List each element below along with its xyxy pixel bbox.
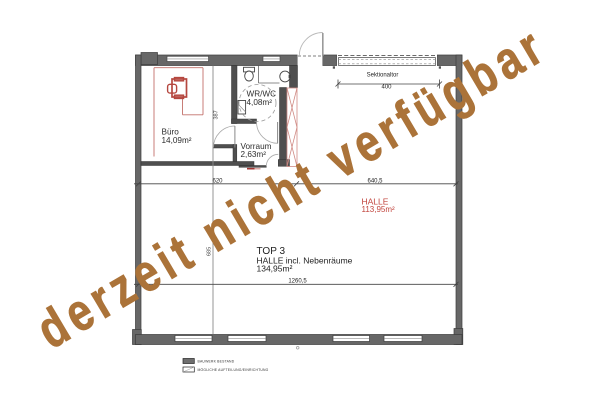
svg-text:387: 387: [214, 110, 220, 119]
svg-text:134,95m²: 134,95m²: [257, 264, 293, 274]
svg-text:MÖGLICHE AUFTEILUNG/EINRICHTUN: MÖGLICHE AUFTEILUNG/EINRICHTUNG: [198, 368, 269, 372]
svg-text:2,63m²: 2,63m²: [241, 150, 267, 159]
svg-text:14,09m²: 14,09m²: [162, 136, 192, 145]
svg-text:BAUWERK BESTAND: BAUWERK BESTAND: [198, 360, 235, 364]
svg-text:1260,5: 1260,5: [288, 279, 307, 285]
svg-text:113,95m²: 113,95m²: [362, 205, 396, 214]
svg-text:400: 400: [381, 85, 392, 91]
svg-text:4,08m²: 4,08m²: [247, 98, 273, 107]
svg-text:640,5: 640,5: [367, 178, 383, 184]
svg-text:Sektionaltor: Sektionaltor: [367, 73, 399, 79]
svg-text:620: 620: [212, 178, 223, 184]
